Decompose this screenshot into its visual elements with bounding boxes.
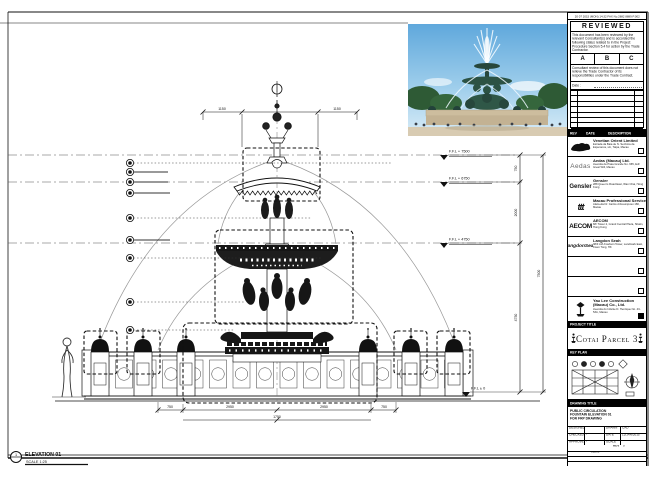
key-plan-drawing: [568, 356, 646, 400]
dwg-no-row: DWG NO. P3-M_PD_25101 REV 0: [568, 445, 646, 452]
vdim-label: 7500: [537, 270, 541, 278]
langdon-seah-logo: LangdonSeah: [568, 237, 593, 256]
aedas-logo: Aedas: [568, 157, 593, 176]
contractor-logo: [568, 297, 593, 321]
consultant-row: Venetian Orient Limited Estrada da Baia …: [568, 137, 646, 157]
ttt-logo: ttt: [568, 197, 593, 216]
status-a: A: [571, 54, 595, 64]
consultant-name: Aedas (Macau) Ltd.: [593, 159, 646, 161]
field-label: DATE: [606, 434, 614, 436]
rev-col-label: REV: [570, 131, 577, 135]
rev-value: 0: [623, 445, 625, 447]
checkbox: [638, 248, 644, 254]
stamp-paragraph: Consultant review of this document does …: [572, 66, 642, 77]
elevation-bubble-number: 1: [15, 453, 17, 457]
stamp-status-options: A B C: [571, 54, 643, 65]
dim-label: 2950: [226, 405, 234, 409]
scale-figure: [52, 338, 86, 397]
project-name: Cotai Parcel 3: [576, 334, 638, 344]
field-value: 12/JAN/2015: [622, 434, 640, 436]
level-label: F.F.L ± 0: [471, 387, 485, 391]
fax-header: 20 07 2015 (MON) 14:32 FAX No.2882 8889 …: [568, 13, 646, 20]
drawing-title-label: DRAWING TITLE: [570, 401, 597, 405]
fax-header-text: 20 07 2015 (MON) 14:32 FAX No.2882 8889 …: [575, 14, 640, 17]
reviewed-stamp: REVIEWED This document has been reviewed…: [568, 20, 646, 130]
consultant-row: AECOM AECOM 8/F Tower 2, Grand Central P…: [568, 217, 646, 237]
contractor-row: Yau Lee Construction (Macau) Co., Ltd. A…: [568, 297, 646, 322]
checkbox: [638, 148, 644, 154]
drawing-title-text: PUBLIC CIRCULATION FOUNTAIN ELEVATION 01…: [568, 407, 646, 427]
empty-consultant-box: [568, 257, 646, 277]
level-label: F.F.L + 6750: [449, 177, 470, 181]
upper-basin: [234, 160, 320, 249]
checkbox: [638, 288, 644, 294]
consultant-name: AECOM: [593, 219, 646, 221]
field-label: CHECKED: [569, 434, 584, 436]
checkbox: [638, 268, 644, 274]
key-plan-label: KEY PLAN: [570, 351, 587, 355]
fountain-finial: [263, 100, 292, 163]
field-label: SCALE: [606, 441, 616, 443]
contractor-name: Yau Lee Construction (Macau) Co., Ltd.: [593, 299, 646, 304]
checkbox: [638, 188, 644, 194]
gensler-logo: Gensler: [568, 177, 593, 196]
field-label: DRAWN: [606, 427, 617, 429]
elevation-label: ELEVATION 01: [25, 452, 61, 458]
consultant-row: LangdonSeah Langdon Seah 38/F AIA Kowloo…: [568, 237, 646, 257]
consultant-row: Aedas Aedas (Macau) Ltd. Avenida da Prai…: [568, 157, 646, 177]
empty-consultant-box: [568, 277, 646, 297]
field-value: CAD: [622, 427, 631, 429]
fountain-ornament-icon: [638, 331, 643, 346]
title-block-panel: 20 07 2015 (MON) 14:32 FAX No.2882 8889 …: [567, 12, 647, 466]
level-label: F.F.L + 7500: [449, 150, 470, 154]
revision-header-bar: REV DATE DESCRIPTION BY: [568, 130, 646, 137]
dim-label: 1750: [273, 415, 281, 419]
status-c: C: [620, 54, 643, 64]
venetian-lion-logo: [568, 137, 593, 156]
checkbox: [638, 208, 644, 214]
vdim-label: 750: [514, 166, 518, 172]
consultant-name: Venetian Orient Limited: [593, 139, 646, 141]
field-value: -: [586, 441, 593, 443]
bottom-dimensions: 750 2950 2950 750 1750: [156, 402, 399, 423]
stamp-paragraph: This document has been reviewed by the r…: [572, 33, 642, 52]
stamp-title: REVIEWED: [571, 22, 643, 32]
drawing-sheet: 1150 1150 F.F.L + 7500 F.F.L + 6750 F.F.…: [0, 0, 650, 488]
field-value: -: [586, 434, 593, 436]
field-label: APPROVED: [569, 441, 584, 443]
vdim-label: 4750: [514, 314, 518, 322]
project-title-label: PROJECT TITLE: [570, 323, 596, 327]
status-b: B: [595, 54, 619, 64]
consultant-name: Macau Professional Services Ltd.: [593, 199, 646, 201]
checkbox-filled: [638, 313, 644, 319]
vdim-label: 2000: [514, 209, 518, 217]
rev-label: REV: [613, 445, 617, 447]
project-name-box: Cotai Parcel 3: [568, 328, 646, 350]
ref-cad-file-row: REF. CAD FILE NAME -: [568, 462, 646, 467]
aecom-logo: AECOM: [568, 217, 593, 236]
stamp-date-line: [594, 84, 642, 88]
middle-basin: [216, 245, 338, 269]
stamp-table: [571, 90, 643, 130]
field-value: AS SHOWN: [622, 441, 634, 442]
consultant-row: ttt Macau Professional Services Ltd. Ala…: [568, 197, 646, 217]
fountain-photo: [408, 24, 567, 136]
dim-label: 2950: [320, 405, 328, 409]
dwg-no-value: P3-M_PD_25101: [582, 445, 594, 446]
field-label: DESIGNED: [569, 427, 584, 429]
checkbox: [638, 228, 644, 234]
job-number-value: 31203: [591, 452, 603, 453]
dim-label: 1150: [218, 107, 226, 111]
consultant-name: Langdon Seah: [593, 239, 646, 241]
drawing-title-bar: DRAWING TITLE: [568, 400, 646, 407]
signature-grid: DESIGNED DRAWN CAD CHECKED - DATE 12/JAN…: [568, 427, 646, 445]
consultant-name: Gensler: [593, 179, 646, 181]
drawing-title-line: FOR FRP DRAWING: [570, 417, 646, 421]
description-col-label: DESCRIPTION: [608, 131, 631, 135]
dim-label: 1150: [333, 107, 341, 111]
dim-label: 750: [167, 405, 173, 409]
dwg-no-label: DWG NO.: [568, 445, 573, 446]
checkbox: [638, 168, 644, 174]
date-col-label: DATE: [586, 131, 595, 135]
pool-parapet: [55, 328, 540, 401]
consultant-row: Gensler Gensler 288 Queen's Road East, W…: [568, 177, 646, 197]
dim-label: 750: [381, 405, 387, 409]
level-label: F.F.L + 4750: [449, 238, 470, 242]
ref-cad-file-value: -: [599, 462, 605, 463]
stamp-date-label: Date :: [572, 84, 581, 88]
elevation-scale: SCALE 1:25: [26, 460, 47, 464]
